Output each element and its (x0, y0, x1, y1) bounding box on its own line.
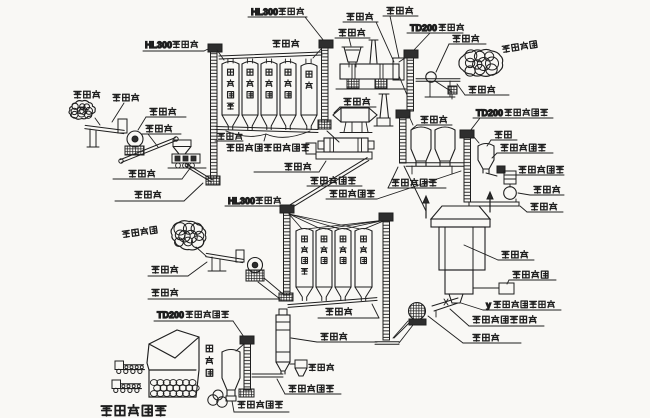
svg-text:y: y (486, 300, 491, 310)
svg-text:TD200: TD200 (476, 108, 503, 118)
svg-text:HL300: HL300 (251, 7, 278, 17)
svg-text:HL300: HL300 (228, 196, 255, 206)
svg-text:TD200: TD200 (157, 310, 184, 320)
svg-text:TD200: TD200 (410, 23, 437, 33)
svg-text:HL300: HL300 (145, 40, 172, 50)
